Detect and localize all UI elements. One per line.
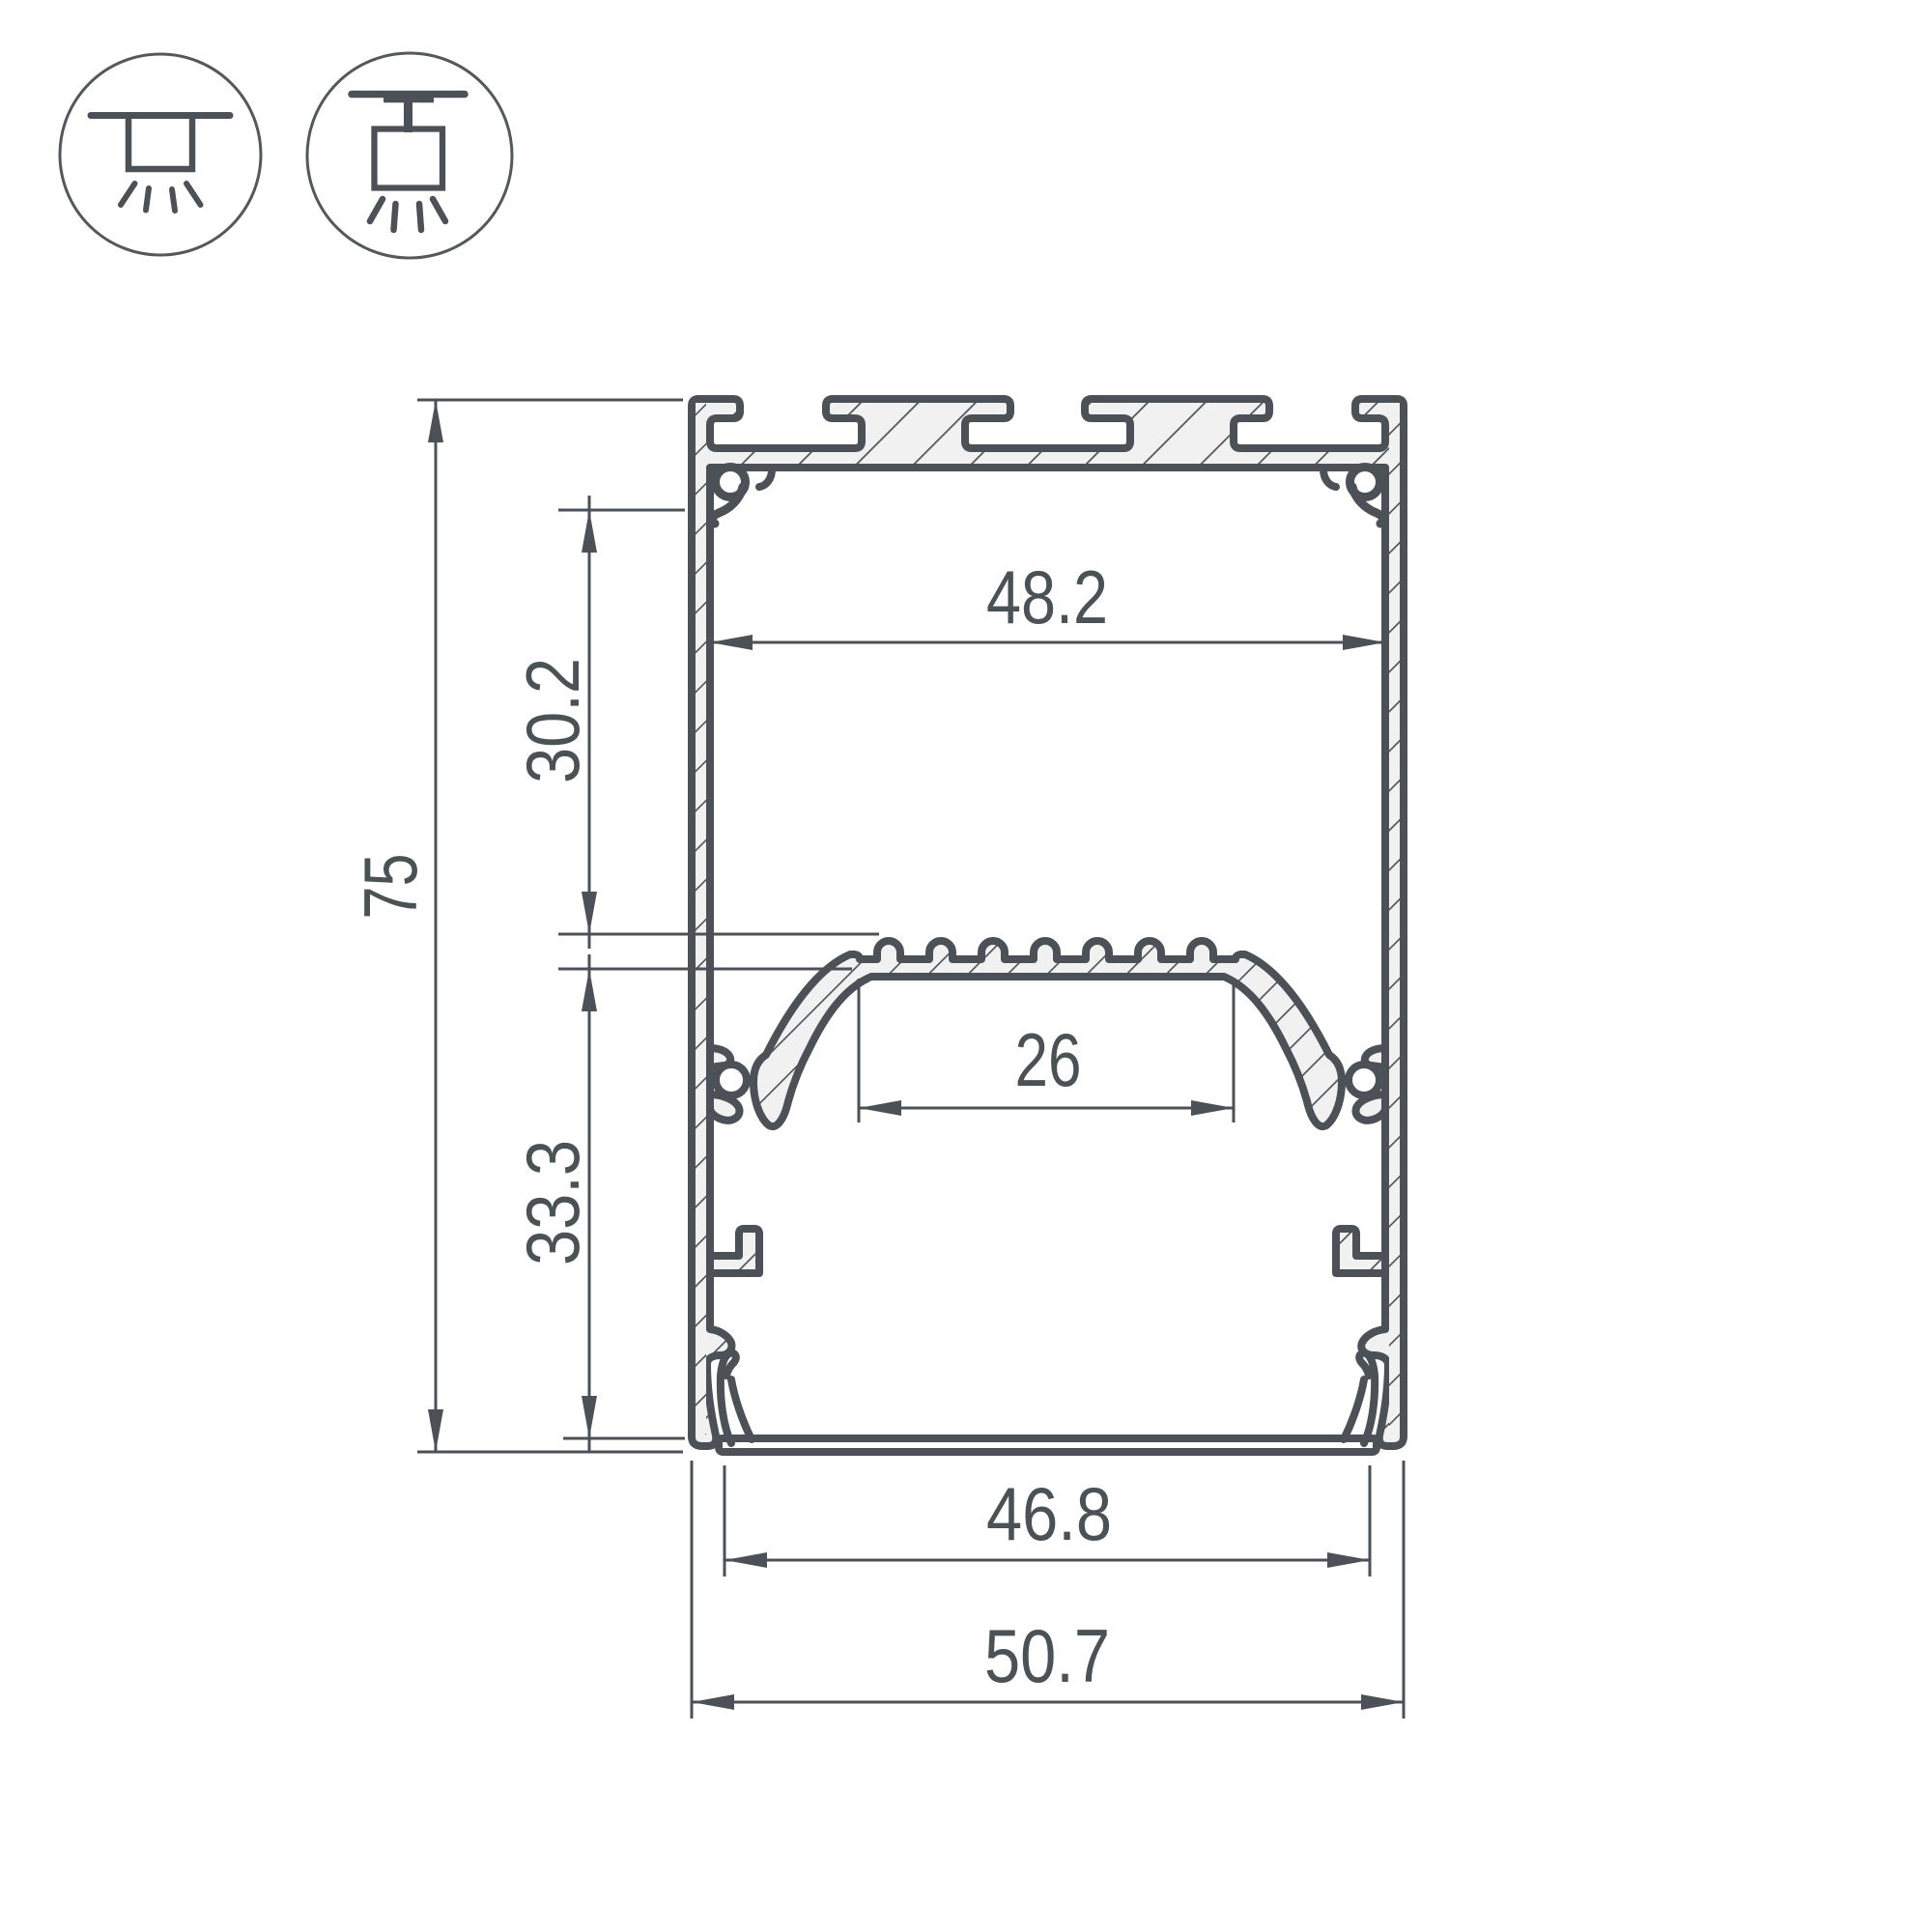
svg-text:75: 75	[348, 854, 433, 920]
svg-text:48.2: 48.2	[986, 554, 1108, 639]
svg-text:30.2: 30.2	[510, 658, 595, 783]
svg-text:26: 26	[1015, 1017, 1082, 1102]
svg-text:50.7: 50.7	[984, 1613, 1110, 1698]
svg-text:33.3: 33.3	[510, 1140, 595, 1265]
svg-text:46.8: 46.8	[986, 1471, 1112, 1556]
